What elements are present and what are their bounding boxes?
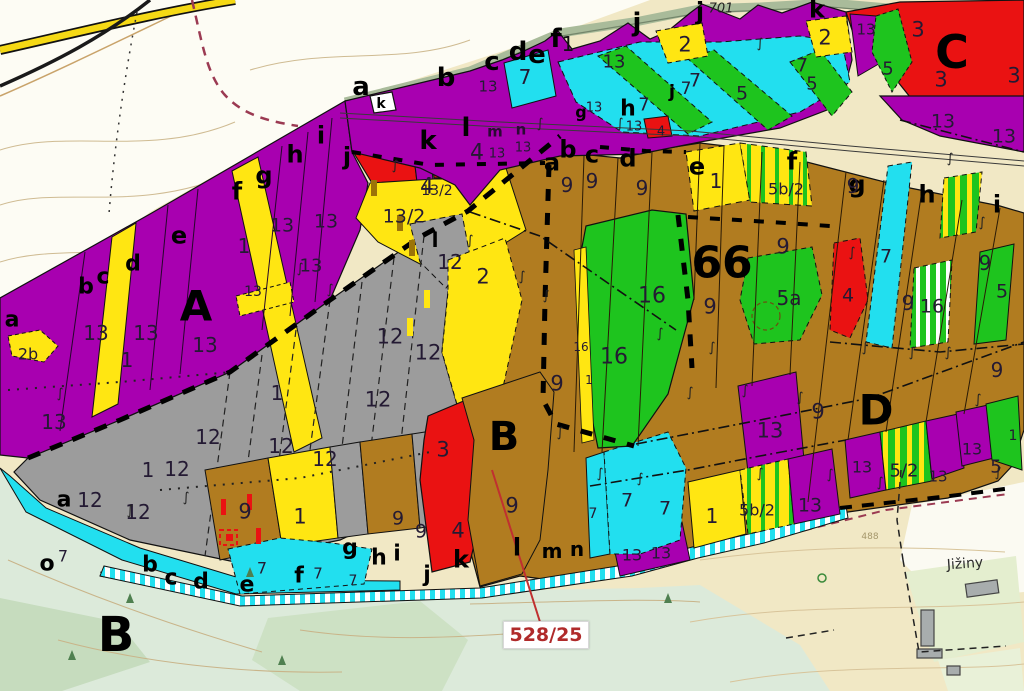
map-label-9: 9 [991, 358, 1004, 382]
map-label-n: n [516, 120, 527, 138]
map-canvas[interactable]: ABCDB66abcdef1jj701kabcdefghijklmnghobcd… [0, 0, 1024, 691]
map-label-9: 9 [415, 521, 427, 543]
map-label-d: d [193, 570, 209, 595]
map-label-5: 5 [882, 58, 893, 79]
map-label-e: e [689, 152, 705, 180]
map-label-b: b [559, 135, 576, 163]
map-label-5: 5 [806, 73, 817, 94]
map-shape[interactable] [360, 434, 420, 534]
map-label-13/2: 13/2 [383, 206, 426, 228]
map-label-a: a [57, 488, 72, 513]
map-label-1: 1 [271, 381, 284, 405]
map-label-3: 3 [911, 17, 924, 41]
block-label-66: 66 [691, 237, 752, 288]
map-shape [226, 534, 233, 541]
map-label-1: 1 [710, 169, 723, 193]
map-label-∫: ∫ [979, 216, 986, 231]
map-label-13: 13 [798, 495, 822, 517]
map-label-∫: ∫ [827, 468, 834, 483]
map-label-16: 16 [920, 296, 944, 318]
map-label-∫: ∫ [543, 289, 550, 304]
map-label-∫: ∫ [637, 472, 644, 487]
map-label-12: 12 [195, 425, 220, 449]
map-label-k: k [419, 126, 437, 156]
map-label-9: 9 [392, 508, 404, 530]
map-label-1: 1 [585, 373, 593, 387]
map-label-13: 13 [992, 126, 1016, 148]
map-label-9: 9 [979, 251, 992, 275]
map-label-2b: 2b [18, 345, 38, 364]
map-label-e: e [240, 573, 255, 598]
map-label-9: 9 [636, 176, 649, 200]
map-label-∫: ∫ [519, 270, 526, 285]
map-label-i: i [393, 542, 401, 567]
map-label-l: l [462, 113, 471, 143]
map-label-5a: 5a [777, 286, 802, 310]
map-label-∫: ∫ [797, 391, 804, 406]
map-label-c: c [585, 140, 599, 168]
section-label-A: A [180, 282, 213, 331]
map-label-a: a [544, 148, 560, 176]
map-label-3: 3 [436, 437, 449, 461]
map-label-13: 13 [192, 333, 217, 357]
map-label-∫: ∫ [657, 327, 664, 342]
map-label-∫: ∫ [392, 159, 399, 174]
map-label-9: 9 [505, 493, 518, 517]
map-label-7: 7 [349, 573, 358, 589]
map-label-n: n [570, 537, 584, 561]
map-label-j: j [695, 0, 704, 25]
map-label-d: d [509, 37, 528, 67]
map-label-13: 13 [478, 77, 497, 95]
map-label-12: 12 [164, 457, 189, 481]
map-label-c: c [96, 265, 109, 290]
map-label-7: 7 [638, 94, 649, 115]
map-label-1: 1 [238, 234, 251, 258]
map-label-4: 4 [470, 141, 484, 166]
map-label-5/2: 5/2 [890, 460, 919, 481]
map-label-16: 16 [600, 345, 628, 370]
map-shape [424, 290, 430, 308]
map-label-∫: ∫ [742, 384, 749, 399]
map-label-3: 3 [1007, 63, 1020, 87]
map-label-16: 16 [638, 284, 666, 309]
map-label-4: 4 [842, 285, 854, 307]
map-shape [409, 240, 415, 256]
map-label-k: k [453, 545, 470, 573]
map-label-9: 9 [586, 169, 599, 193]
map-label-13: 13 [603, 51, 626, 72]
section-label-D: D [859, 386, 894, 435]
map-label-13: 13 [515, 141, 532, 156]
map-label-∫: ∫ [597, 467, 604, 482]
map-label-j: j [342, 142, 351, 170]
map-label-13: 13 [651, 544, 671, 563]
map-label-9: 9 [703, 294, 716, 318]
map-shape [454, 317, 460, 335]
map-label-7: 7 [589, 506, 598, 522]
map-label-1: 1 [1009, 428, 1018, 444]
map-label-9: 9 [847, 174, 860, 198]
building [921, 610, 934, 646]
parcel-5b2[interactable] [740, 459, 794, 534]
map-label-∫: ∫ [862, 341, 869, 356]
map-label-13: 13 [270, 215, 294, 237]
contour-label: 488 [861, 532, 878, 542]
map-label-∫: ∫ [617, 117, 624, 132]
map-label-h: h [371, 546, 387, 571]
map-label-12: 12 [312, 447, 337, 471]
map-label-∫: ∫ [537, 117, 544, 132]
map-label-f: f [550, 24, 562, 54]
map-label-7: 7 [257, 559, 267, 578]
map-label-13: 13 [586, 101, 603, 116]
map-label-7: 7 [659, 498, 671, 520]
map-label-j: j [668, 81, 675, 102]
section-label-B: B [489, 414, 520, 460]
map-label-k: k [809, 0, 826, 23]
building [947, 666, 960, 675]
map-label-701: 701 [709, 2, 734, 17]
map-label-j: j [422, 563, 431, 588]
map-label-13: 13 [314, 211, 338, 233]
map-label-7: 7 [58, 547, 68, 566]
map-label-g: g [342, 536, 358, 561]
map-label-13: 13 [83, 321, 108, 345]
map-label-13: 13 [852, 458, 872, 477]
map-viewport[interactable]: ABCDB66abcdef1jj701kabcdefghijklmnghobcd… [0, 0, 1024, 691]
map-label-m: m [542, 539, 563, 563]
map-label-12: 12 [437, 250, 462, 274]
map-label-b: b [437, 63, 456, 93]
map-shape [371, 180, 377, 196]
map-label-f: f [294, 564, 304, 589]
parcel-7-7[interactable] [604, 432, 686, 554]
map-label-h: h [286, 140, 303, 168]
map-label-∫: ∫ [849, 246, 856, 261]
map-label-b: b [78, 275, 94, 300]
map-label-5: 5 [736, 83, 748, 105]
map-label-g: g [255, 161, 272, 189]
map-label-13: 13 [928, 467, 947, 485]
map-label-1: 1 [121, 348, 134, 372]
map-label-7: 7 [519, 65, 532, 89]
map-label-a: a [5, 308, 20, 333]
map-label-∫: ∫ [297, 262, 304, 277]
map-label-o: o [39, 552, 54, 577]
map-label-9: 9 [561, 173, 574, 197]
map-label-1: 1 [142, 458, 155, 482]
map-label-7: 7 [880, 246, 892, 268]
map-label-c: c [484, 47, 499, 77]
map-label-9: 9 [811, 399, 824, 423]
map-label-12: 12 [365, 387, 392, 411]
map-label-f: f [787, 147, 798, 175]
map-label-13: 13 [41, 410, 66, 434]
map-label-d: d [125, 252, 141, 277]
map-label-∫: ∫ [557, 426, 564, 441]
map-label-13: 13 [622, 546, 642, 565]
map-label-12: 12 [77, 488, 102, 512]
map-label-7: 7 [313, 564, 323, 582]
map-label-∫: ∫ [757, 37, 764, 52]
map-label-i: i [993, 190, 1001, 218]
map-label-∫: ∫ [467, 234, 474, 249]
map-label-12: 12 [377, 324, 404, 348]
map-label-j: j [632, 8, 642, 38]
map-label-13/2: 13/2 [421, 183, 452, 199]
map-label-∫: ∫ [757, 467, 764, 482]
map-label-l: l [513, 533, 521, 561]
map-label-2: 2 [678, 32, 691, 56]
map-label-f: f [232, 177, 243, 205]
map-label-∫: ∫ [687, 386, 694, 401]
map-label-9: 9 [550, 371, 563, 395]
map-label-∫: ∫ [947, 152, 954, 167]
map-label-12: 12 [415, 340, 442, 364]
map-label-13: 13 [626, 120, 643, 135]
map-label-13: 13 [757, 418, 784, 442]
map-label-1: 1 [562, 32, 575, 56]
map-label-5b/2: 5b/2 [739, 501, 775, 520]
map-label-∫: ∫ [127, 504, 134, 519]
map-label-l: l [432, 228, 439, 252]
map-label-4: 4 [451, 518, 464, 542]
map-label-∫: ∫ [709, 341, 716, 356]
map-label-∫: ∫ [975, 393, 982, 408]
map-label-9: 9 [776, 234, 789, 258]
map-label-∫: ∫ [877, 476, 884, 491]
map-label-13: 13 [931, 111, 955, 133]
map-label-∫: ∫ [57, 387, 64, 402]
map-label-13: 13 [489, 147, 506, 162]
map-label-5: 5 [996, 281, 1008, 303]
map-label-m: m [487, 122, 503, 140]
map-label-∫: ∫ [995, 466, 1002, 481]
map-label-1: 1 [706, 504, 719, 528]
map-label-∫: ∫ [327, 283, 334, 298]
map-label-16: 16 [573, 340, 588, 354]
map-label-∫: ∫ [183, 491, 190, 506]
map-label-k: k [376, 96, 386, 112]
map-label-9: 9 [238, 499, 251, 523]
map-label-2: 2 [476, 264, 489, 288]
map-label-9: 9 [902, 291, 915, 315]
map-label-5b/2: 5b/2 [768, 180, 804, 199]
map-label-1: 1 [293, 504, 306, 528]
map-label-a: a [352, 72, 370, 102]
map-label-∫: ∫ [909, 346, 916, 361]
map-label-3: 3 [934, 67, 947, 91]
map-shape [407, 318, 413, 336]
map-label-∫: ∫ [945, 346, 952, 361]
map-label-13: 13 [962, 440, 982, 459]
map-label-b: b [142, 553, 158, 578]
map-label-7: 7 [681, 79, 692, 99]
map-label-13: 13 [133, 321, 158, 345]
map-label-2: 2 [818, 25, 831, 49]
parcel-callout-label[interactable]: 528/25 [503, 621, 589, 649]
map-label-h: h [918, 180, 935, 208]
map-label-13: 13 [856, 20, 875, 38]
map-label-e: e [171, 221, 187, 249]
map-label-i: i [317, 121, 325, 149]
section-label-B2: B [98, 607, 135, 663]
map-label-12: 12 [268, 434, 293, 458]
map-label-13: 13 [244, 284, 262, 300]
map-label-d: d [619, 144, 636, 172]
map-shape [221, 499, 226, 515]
map-shape [256, 528, 261, 544]
map-label-c: c [164, 566, 177, 591]
map-label-7: 7 [621, 490, 633, 512]
map-label-4: 4 [657, 125, 665, 140]
